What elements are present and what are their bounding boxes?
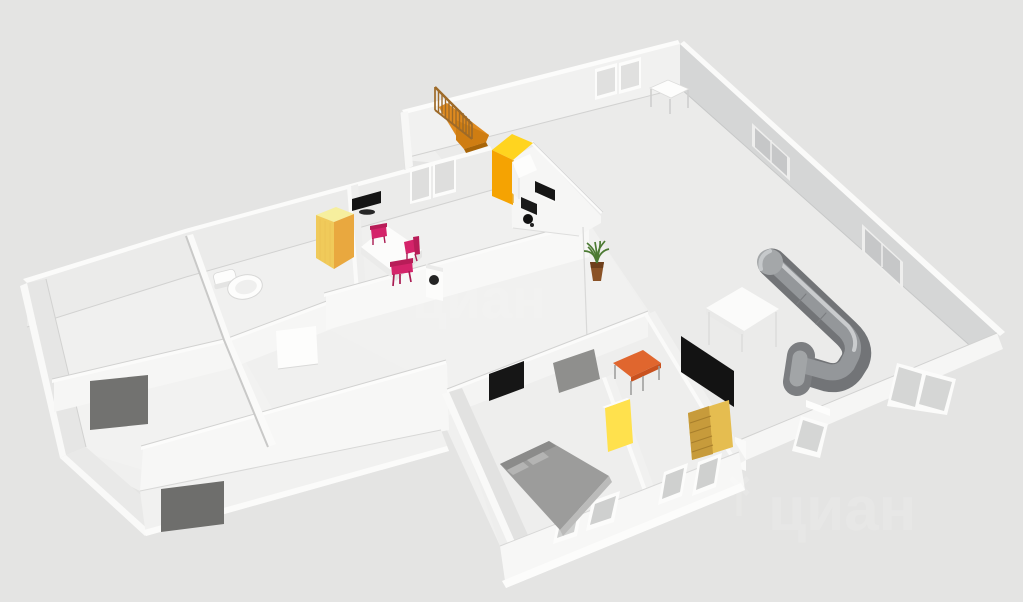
svg-text:циан: циан	[412, 267, 546, 330]
svg-text:циан: циан	[768, 475, 916, 544]
